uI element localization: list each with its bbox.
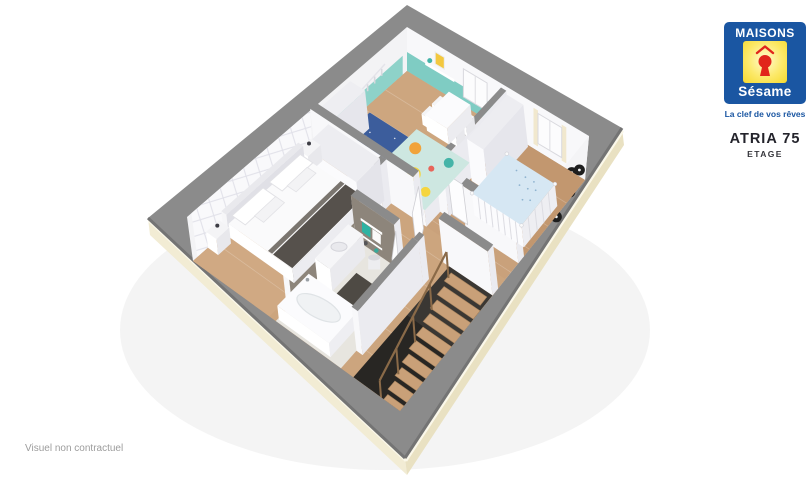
floor-label: ETAGE bbox=[722, 149, 808, 159]
brand-name-bottom: Sésame bbox=[738, 85, 791, 99]
brand-tagline: La clef de vos rêves bbox=[722, 109, 808, 119]
keyhole-icon bbox=[743, 41, 787, 83]
logo-blue-box: MAISONS Sésame bbox=[724, 22, 806, 104]
maisons-sesame-logo: MAISONS Sésame La clef de vos rêves bbox=[722, 22, 808, 119]
model-name: ATRIA 75 bbox=[722, 131, 808, 147]
brand-name-top: MAISONS bbox=[735, 27, 795, 39]
floor-plan-3d bbox=[0, 0, 811, 480]
logo-yellow-box bbox=[743, 41, 787, 83]
disclaimer-text: Visuel non contractuel bbox=[25, 443, 123, 454]
